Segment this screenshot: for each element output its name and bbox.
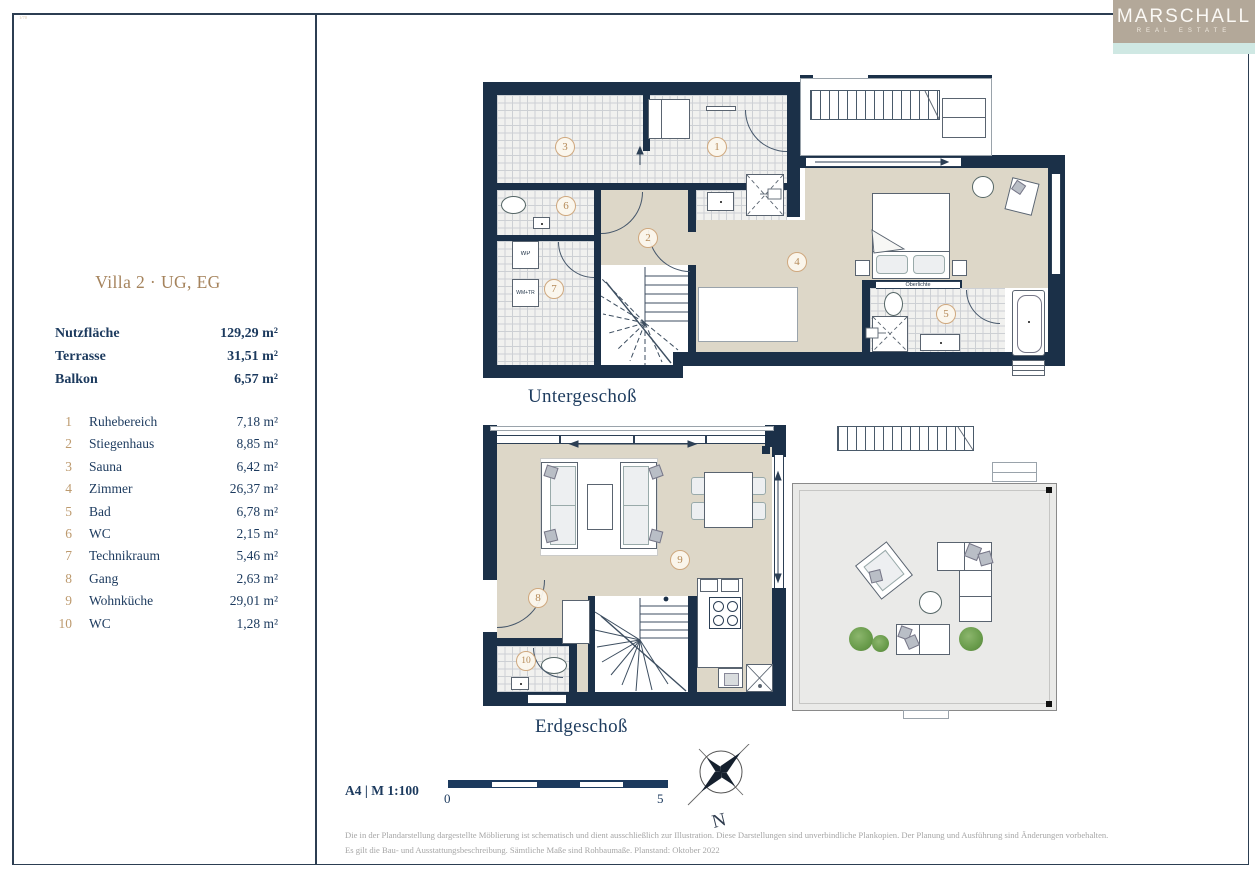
- window-direction-arrows: [570, 147, 948, 582]
- eg-stair-lines: [595, 597, 688, 691]
- scale-bar: [448, 780, 668, 788]
- sheet-scale-label: A4 | M 1:100: [345, 783, 419, 799]
- scale-five: 5: [657, 791, 664, 807]
- floorplan-sheet: 1/70 MARSCHALL REAL ESTATE Villa 2 · UG,…: [0, 0, 1255, 881]
- disclaimer-line-1: Die in der Plandarstellung dargestellte …: [345, 828, 1245, 843]
- scale-zero: 0: [444, 791, 451, 807]
- north-label: N: [710, 809, 729, 830]
- ug-stair-lines: [601, 267, 688, 365]
- disclaimer: Die in der Plandarstellung dargestellte …: [345, 828, 1245, 858]
- compass-star: [687, 744, 755, 806]
- compass-rose: N: [686, 744, 756, 830]
- shower-and-shaft-marks: [747, 91, 973, 691]
- plan-linework: [0, 0, 1255, 881]
- disclaimer-line-2: Es gilt die Bau- und Ausstattungsbeschre…: [345, 843, 1245, 858]
